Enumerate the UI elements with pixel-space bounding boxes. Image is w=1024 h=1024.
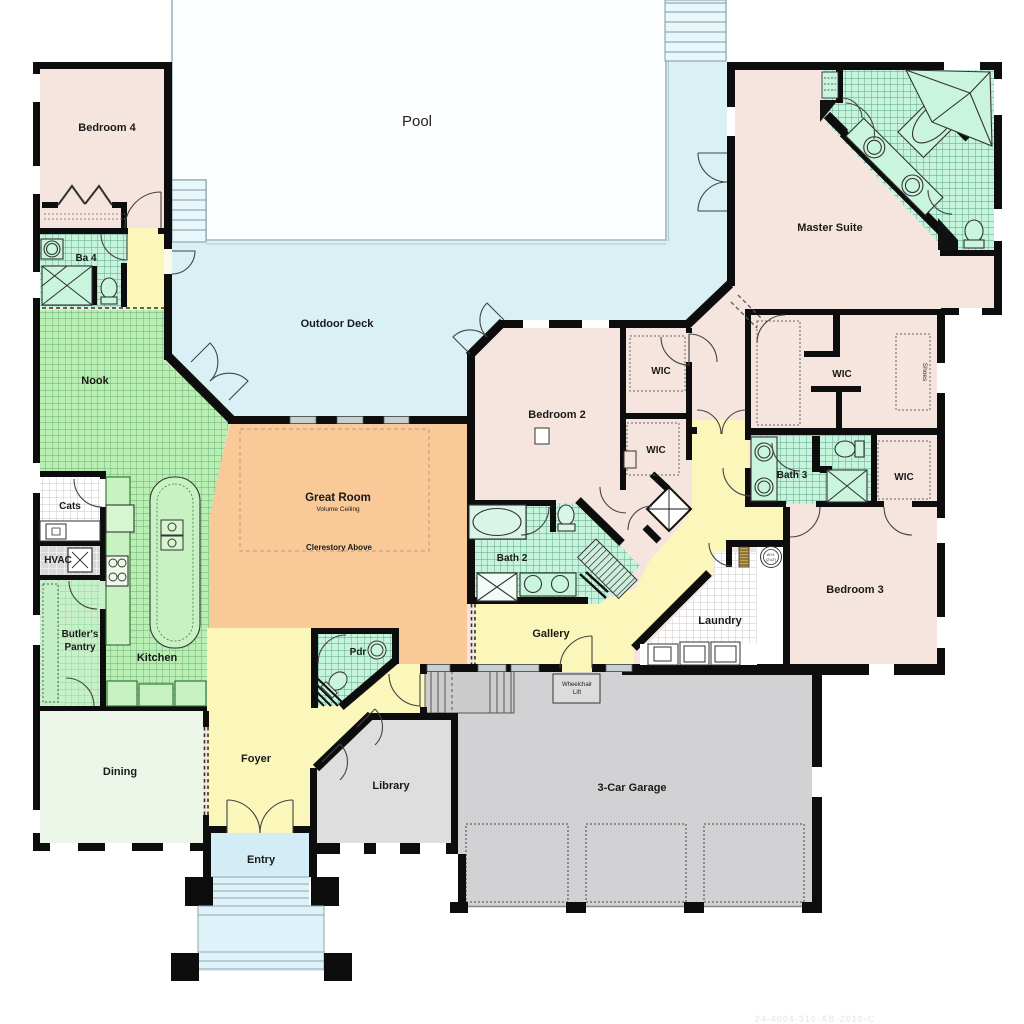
svg-text:Great Room: Great Room xyxy=(305,492,371,504)
svg-text:Gallery: Gallery xyxy=(532,628,570,640)
svg-text:WIC: WIC xyxy=(832,369,851,380)
svg-text:24-4004-310-AB-2010-C: 24-4004-310-AB-2010-C xyxy=(755,1014,876,1024)
svg-text:Entry: Entry xyxy=(247,854,276,866)
svg-text:HVAC: HVAC xyxy=(44,555,72,566)
svg-text:Bath 2: Bath 2 xyxy=(497,553,528,564)
svg-text:Pantry: Pantry xyxy=(64,642,96,653)
svg-text:Bath 3: Bath 3 xyxy=(777,470,808,481)
svg-text:Nook: Nook xyxy=(81,375,109,387)
svg-text:Clerestory Above: Clerestory Above xyxy=(306,543,373,552)
svg-text:Butler's: Butler's xyxy=(62,629,99,640)
svg-text:3-Car Garage: 3-Car Garage xyxy=(597,782,666,794)
svg-text:Bedroom 2: Bedroom 2 xyxy=(528,409,585,421)
svg-text:Volume Ceiling: Volume Ceiling xyxy=(316,506,360,513)
svg-text:Master Suite: Master Suite xyxy=(797,222,862,234)
svg-text:Pdr: Pdr xyxy=(350,647,367,658)
svg-text:Cats: Cats xyxy=(59,501,81,512)
svg-text:Pool: Pool xyxy=(402,113,432,130)
svg-text:Dining: Dining xyxy=(103,766,137,778)
svg-text:Kitchen: Kitchen xyxy=(137,652,178,664)
svg-text:Shoes: Shoes xyxy=(921,363,928,382)
svg-text:Library: Library xyxy=(372,780,410,792)
svg-text:Laundry: Laundry xyxy=(698,615,742,627)
svg-text:(2'x2'): (2'x2') xyxy=(766,557,777,562)
svg-text:Lift: Lift xyxy=(573,690,581,696)
svg-text:WIC: WIC xyxy=(646,445,665,456)
svg-text:Bedroom 4: Bedroom 4 xyxy=(78,122,136,134)
svg-text:Ba 4: Ba 4 xyxy=(75,253,97,264)
svg-text:Bedroom 3: Bedroom 3 xyxy=(826,584,883,596)
svg-text:WIC: WIC xyxy=(651,366,670,377)
svg-text:Outdoor Deck: Outdoor Deck xyxy=(301,318,375,330)
svg-text:Wheelchair: Wheelchair xyxy=(562,682,592,688)
svg-text:Foyer: Foyer xyxy=(241,753,272,765)
svg-text:WIC: WIC xyxy=(894,472,913,483)
